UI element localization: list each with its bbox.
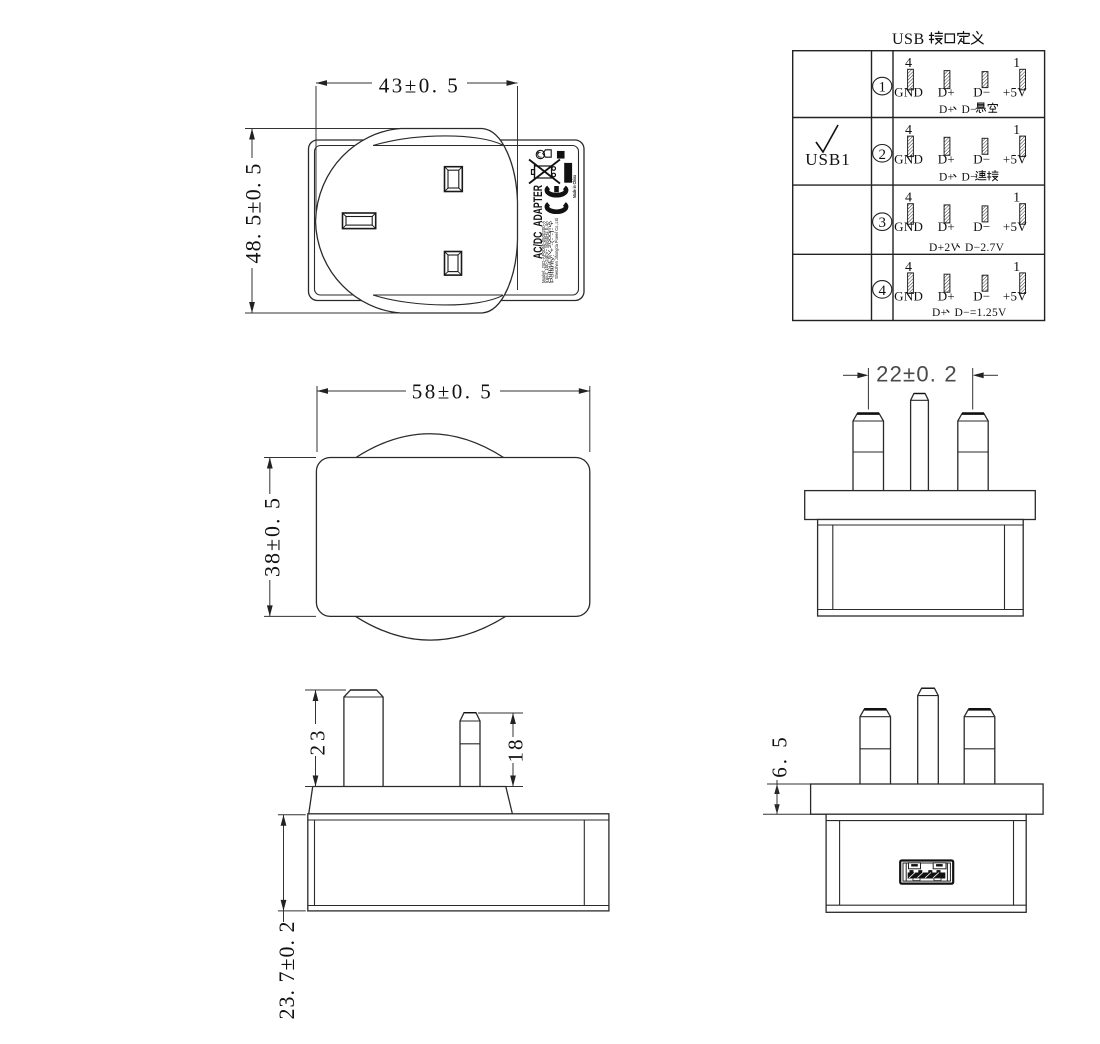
svg-text:43±0. 5: 43±0. 5 [379,74,461,98]
svg-text:1: 1 [1013,260,1020,275]
svg-text:3: 3 [878,215,886,231]
svg-text:D+: D+ [939,104,954,116]
svg-text:D−2.7V: D−2.7V [965,242,1005,254]
svg-text:Made in China: Made in China [572,175,577,198]
svg-text:+5V: +5V [1003,152,1027,167]
svg-text:1: 1 [1013,191,1020,206]
svg-text:GND: GND [894,152,923,167]
svg-text:2: 2 [878,147,886,163]
svg-text:GND: GND [894,219,923,234]
svg-text:23. 7±0. 2: 23. 7±0. 2 [274,920,299,1019]
svg-text:D+: D+ [932,307,947,319]
svg-text:18: 18 [504,738,528,763]
svg-text:D−: D− [973,219,990,234]
svg-text:D+: D+ [939,172,954,184]
svg-text:1: 1 [878,80,886,96]
svg-text:23: 23 [306,727,330,756]
svg-text:D−: D− [962,104,977,116]
svg-text:+5V: +5V [1003,219,1027,234]
svg-text:D−: D− [973,85,990,100]
svg-text:38±0. 5: 38±0. 5 [260,496,285,577]
svg-text:USB1: USB1 [805,150,851,169]
svg-text:GND: GND [894,85,923,100]
svg-text:1: 1 [1013,123,1020,138]
svg-text:D+: D+ [938,219,955,234]
svg-text:4: 4 [878,283,886,299]
svg-text:D−: D− [973,288,990,303]
svg-text:D+: D+ [938,288,955,303]
svg-text:6. 5: 6. 5 [768,734,792,778]
svg-text:58±0. 5: 58±0. 5 [412,380,494,404]
svg-text:D−=1.25V: D−=1.25V [955,307,1008,319]
svg-text:22±0. 2: 22±0. 2 [876,362,958,387]
svg-text:D−: D− [973,152,990,167]
svg-text:Shenzhen Jihongda Power Co.,Lt: Shenzhen Jihongda Power Co.,Ltd [554,218,559,279]
svg-text:D+2V: D+2V [929,242,959,254]
svg-text:48. 5±0. 5: 48. 5±0. 5 [241,162,266,263]
svg-text:D+: D+ [938,152,955,167]
svg-text:GND: GND [894,288,923,303]
svg-text:D−: D− [962,172,977,184]
svg-text:1: 1 [1013,56,1020,71]
svg-text:+5V: +5V [1003,85,1027,100]
svg-text:USB: USB [892,31,925,48]
svg-text:+5V: +5V [1003,288,1027,303]
svg-text:D+: D+ [938,85,955,100]
